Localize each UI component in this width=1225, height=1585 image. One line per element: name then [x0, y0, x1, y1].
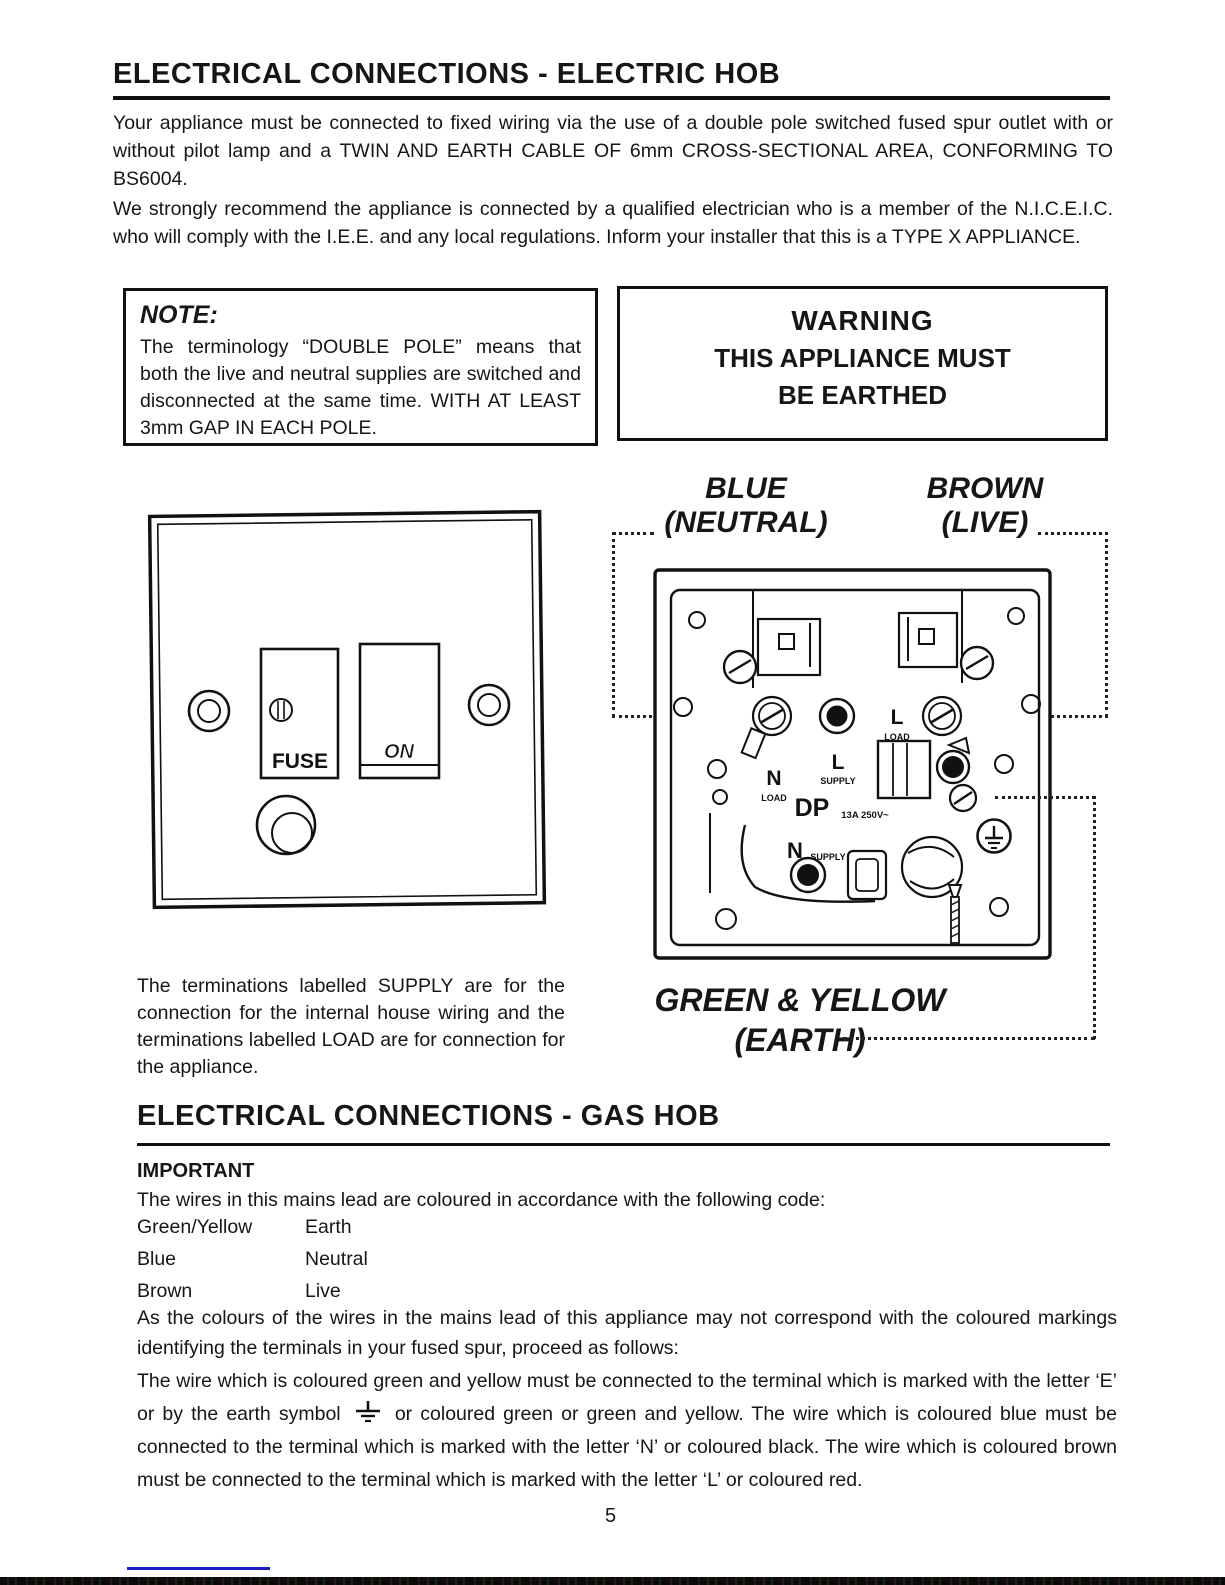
wire-function: Live [305, 1280, 341, 1303]
warning-line-3: BE EARTHED [620, 380, 1105, 411]
n-supply-terminal-icon [797, 864, 819, 886]
dashed-line-right-vertical [1105, 532, 1108, 717]
wire-colour: Blue [137, 1248, 176, 1270]
intro-paragraph-1: Your appliance must be connected to fixe… [113, 109, 1113, 193]
title-underline [113, 96, 1110, 100]
dashed-line-earth-bottom [843, 1037, 1095, 1040]
note-body: The terminology “DOUBLE POLE” means that… [140, 334, 581, 442]
wire-function: Neutral [305, 1248, 368, 1271]
l-load-label: L [891, 706, 904, 729]
supply-load-caption: The terminations labelled SUPPLY are for… [137, 973, 565, 1081]
earth-symbol-inline-icon [353, 1400, 383, 1424]
wire-row-earth: Green/Yellow Earth [137, 1216, 252, 1239]
wire-row-live: Brown Live [137, 1280, 192, 1303]
important-label: IMPORTANT [137, 1160, 254, 1183]
wire-row-neutral: Blue Neutral [137, 1248, 176, 1271]
scan-edge-band [0, 1577, 1225, 1585]
dashed-line-earth-vertical [1093, 796, 1096, 1039]
dashed-line-neutral-top [612, 532, 654, 535]
intro-paragraph-2: We strongly recommend the appliance is c… [113, 195, 1113, 251]
dp-label: DP [795, 794, 830, 822]
fused-spur-back-diagram: L LOAD L SUPPLY N LOAD DP 13A 250V~ N SU… [650, 563, 1058, 965]
dashed-line-live-top [1038, 532, 1108, 535]
fused-spur-front-diagram: FUSE ON [145, 503, 555, 915]
title-underline-gas [137, 1143, 1110, 1146]
l-supply-label: L [832, 751, 845, 774]
n-load-sub-label: LOAD [761, 793, 787, 803]
label-blue: BLUE [646, 472, 846, 506]
note-heading: NOTE: [140, 301, 581, 330]
l-supply-sub-label: SUPPLY [820, 776, 855, 786]
label-brown-live: BROWN (LIVE) [885, 472, 1085, 540]
on-label: ON [384, 741, 415, 763]
section-title-gas-hob: ELECTRICAL CONNECTIONS - GAS HOB [137, 1100, 720, 1133]
warning-box: WARNING THIS APPLIANCE MUST BE EARTHED [617, 286, 1108, 441]
label-brown: BROWN [885, 472, 1085, 506]
earth-terminal-dot-icon [942, 756, 964, 778]
label-blue-neutral: BLUE (NEUTRAL) [646, 472, 846, 540]
footer-blue-mark [127, 1567, 270, 1570]
gas-paragraph-2: The wire which is coloured green and yel… [137, 1365, 1117, 1497]
gas-paragraph-1: As the colours of the wires in the mains… [137, 1303, 1117, 1363]
warning-line-1: WARNING [620, 305, 1105, 337]
manual-page: ELECTRICAL CONNECTIONS - ELECTRIC HOB Yo… [0, 0, 1225, 1585]
warning-line-2: THIS APPLIANCE MUST [620, 343, 1105, 374]
label-green-yellow: GREEN & YELLOW [620, 980, 980, 1020]
n-load-label: N [766, 767, 781, 790]
fuse-block [878, 741, 930, 798]
label-earth: (EARTH) [620, 1020, 980, 1060]
page-number: 5 [605, 1505, 616, 1528]
wire-colour: Brown [137, 1280, 192, 1302]
label-green-yellow-earth: GREEN & YELLOW (EARTH) [620, 980, 980, 1060]
wire-function: Earth [305, 1216, 352, 1239]
dashed-line-earth-horizontal [995, 796, 1095, 799]
dp-rating-label: 13A 250V~ [841, 810, 889, 821]
note-box: NOTE: The terminology “DOUBLE POLE” mean… [123, 288, 598, 446]
wire-colour: Green/Yellow [137, 1216, 252, 1238]
dashed-line-left-vertical [612, 532, 615, 717]
fuse-label: FUSE [272, 750, 328, 773]
section-title-electric-hob: ELECTRICAL CONNECTIONS - ELECTRIC HOB [113, 58, 780, 91]
wire-code-intro: The wires in this mains lead are coloure… [137, 1186, 1117, 1214]
live-supply-terminal-icon [827, 706, 848, 727]
label-neutral: (NEUTRAL) [646, 506, 846, 540]
